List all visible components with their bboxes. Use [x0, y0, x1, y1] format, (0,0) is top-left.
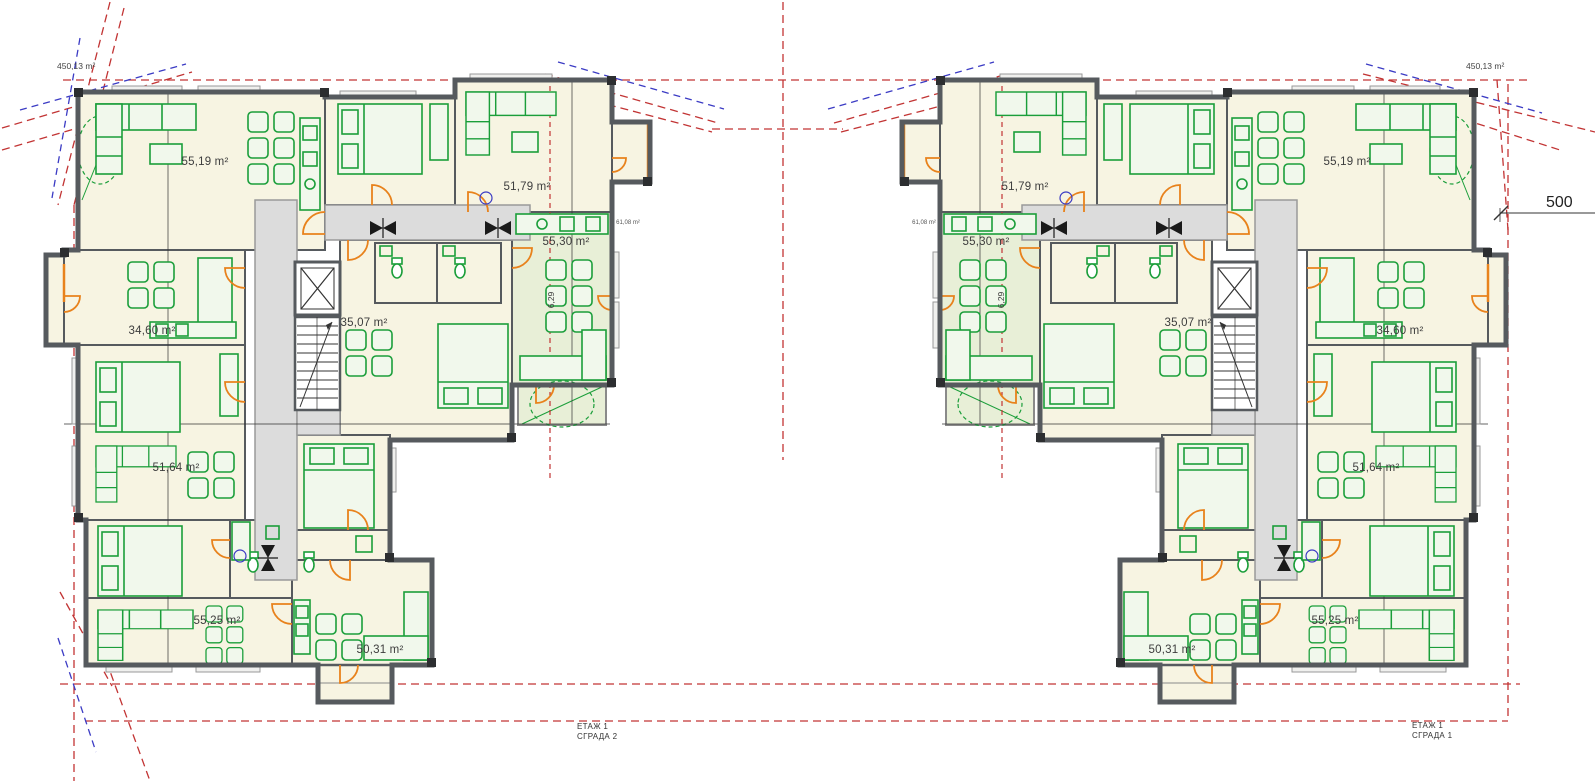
apt-label-5164-b1: 51,64 m²	[1353, 462, 1400, 474]
title-name-b1: СГРАДА 1	[1412, 731, 1452, 741]
floor-plan-canvas: 450,13 m² 450,13 m² 500 61,08 m² 61,08 m…	[0, 0, 1595, 781]
site-plan-drawing	[0, 0, 1595, 781]
title-building-1: ЕТАЖ 1 СГРАДА 1	[1412, 721, 1452, 741]
apt-label-5530-b1: 55,30 m²	[963, 236, 1010, 248]
balcony-label-629-b1: 6,29	[996, 292, 1006, 309]
balcony-label-629-b2: 6,29	[546, 292, 556, 309]
title-name-b2: СГРАДА 2	[577, 732, 617, 742]
building-1-plan	[900, 74, 1506, 702]
common-area-label-left: 61,08 m²	[616, 220, 640, 226]
apt-label-5519-b2: 55,19 m²	[182, 156, 229, 168]
apt-label-5179-b1: 51,79 m²	[1002, 181, 1049, 193]
title-floor-b1: ЕТАЖ 1	[1412, 721, 1452, 731]
apt-label-5519-b1: 55,19 m²	[1324, 156, 1371, 168]
apt-label-5530-b2: 55,30 m²	[543, 236, 590, 248]
apt-label-5031-b2: 50,31 m²	[357, 644, 404, 656]
apt-label-3507-b2: 35,07 m²	[341, 317, 388, 329]
apt-label-5031-b1: 50,31 m²	[1149, 644, 1196, 656]
building-2-plan	[46, 74, 652, 702]
plot-area-label-right: 450,13 m²	[1466, 61, 1504, 71]
apt-label-5179-b2: 51,79 m²	[504, 181, 551, 193]
apt-label-3460-b2: 34,60 m²	[129, 325, 176, 337]
apt-label-3507-b1: 35,07 m²	[1165, 317, 1212, 329]
apt-label-5525-b2: 55,25 m²	[194, 615, 241, 627]
title-floor-b2: ЕТАЖ 1	[577, 722, 617, 732]
plot-area-label-left: 450,13 m²	[57, 61, 95, 71]
apt-label-3460-b1: 34,60 m²	[1377, 325, 1424, 337]
dimension-label-500: 500	[1546, 194, 1573, 212]
common-area-label-right: 61,08 m²	[912, 220, 936, 226]
dimension-line-500	[1494, 206, 1595, 222]
apt-label-5164-b2: 51,64 m²	[153, 462, 200, 474]
apt-label-5525-b1: 55,25 m²	[1312, 615, 1359, 627]
title-building-2: ЕТАЖ 1 СГРАДА 2	[577, 722, 617, 742]
